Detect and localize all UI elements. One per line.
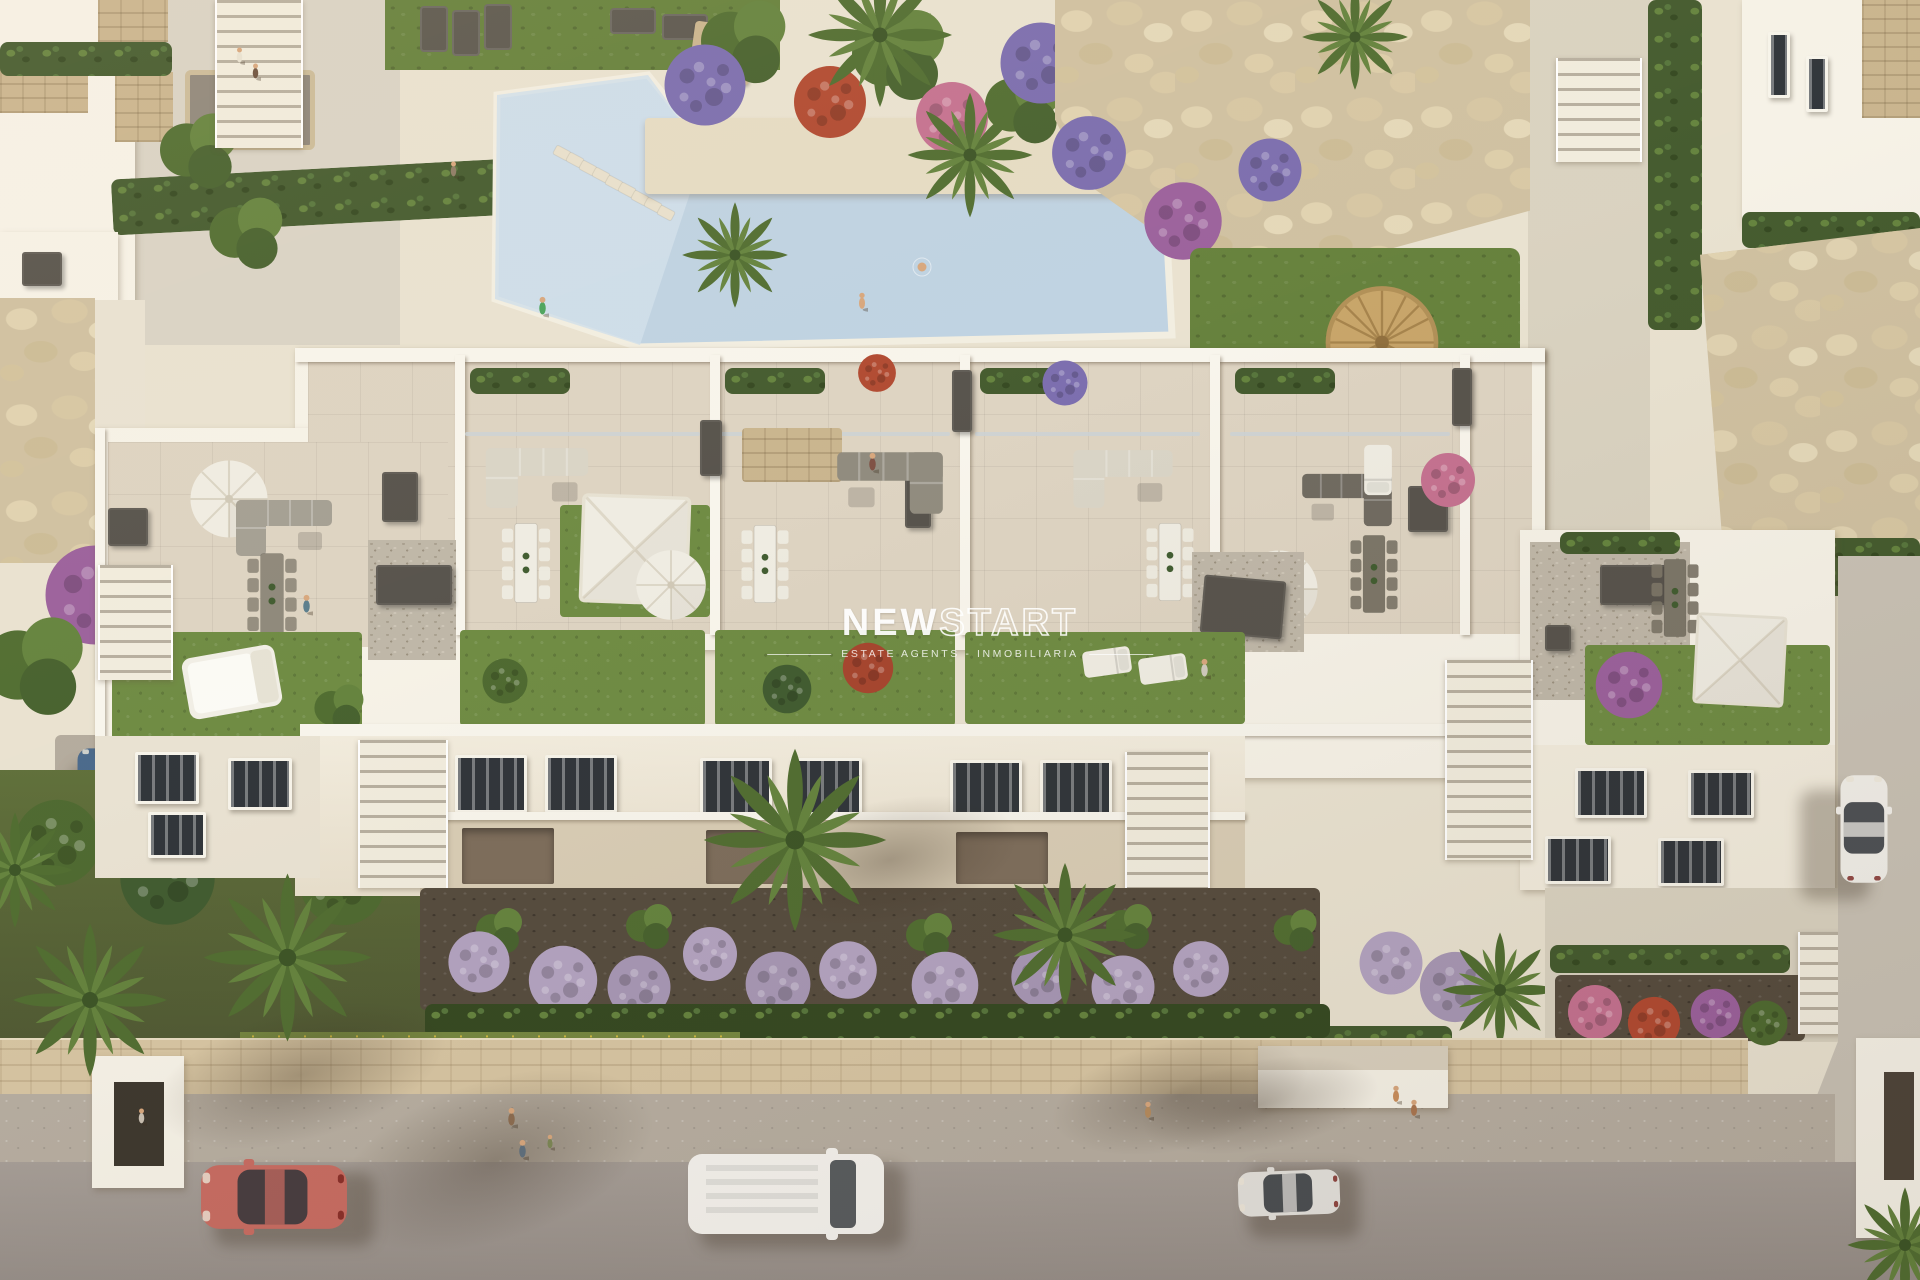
garden-tree	[0, 600, 100, 730]
glass-balustrade	[1230, 432, 1450, 436]
balcony-opening	[462, 828, 554, 884]
pedestrian	[1390, 1082, 1402, 1108]
staircase	[1445, 660, 1533, 860]
bougainvillea-bush	[1592, 648, 1666, 722]
palm-tree	[1440, 930, 1560, 1050]
pedestrian	[234, 44, 245, 68]
outdoor-sofa	[818, 450, 962, 516]
front-parapet	[300, 724, 1545, 736]
roof-skylight-box	[22, 252, 62, 286]
roof-box	[108, 508, 148, 546]
window	[228, 758, 292, 810]
person	[136, 1106, 147, 1128]
bather	[856, 288, 868, 316]
roof-box	[382, 472, 418, 522]
villa-window	[1768, 32, 1790, 98]
villa-door	[1884, 1072, 1914, 1180]
glass-balustrade	[465, 432, 700, 436]
lavender-bush	[1170, 938, 1232, 1000]
pedestrian	[1142, 1098, 1154, 1124]
palm-tree	[680, 200, 790, 310]
watermark-brand-solid: NEW	[842, 602, 940, 644]
terrace-planter	[725, 368, 825, 394]
roof-shrub	[760, 662, 814, 716]
tagline-text: ESTATE AGENTS - INMOBILIARIA	[841, 648, 1079, 660]
garden-plant	[1268, 902, 1324, 958]
sun-lounger	[420, 6, 448, 52]
purple-flower-bush	[1048, 112, 1130, 194]
dining-set	[736, 522, 794, 606]
watermark-brand-outline: START	[939, 602, 1078, 644]
roof-shrub	[480, 656, 530, 706]
glass-balustrade	[975, 432, 1200, 436]
sun-lounger	[1363, 444, 1393, 496]
roof-box	[952, 370, 972, 432]
dining-set	[1142, 520, 1198, 604]
sun-lounger	[452, 10, 480, 56]
tagline-rule-right	[1089, 654, 1153, 655]
pedestrian	[505, 1104, 518, 1132]
person	[1198, 655, 1211, 683]
purple-flower-bush	[660, 40, 750, 130]
garden-plant	[620, 896, 680, 956]
villa-window	[1806, 56, 1828, 112]
outdoor-sofa	[1058, 448, 1188, 510]
palm-tree	[1300, 0, 1410, 92]
outdoor-sofa	[215, 498, 353, 558]
cypress-hedge	[1648, 0, 1702, 330]
palm-tree	[10, 920, 170, 1080]
terrace-planter	[470, 368, 570, 394]
white-parked-car	[1835, 773, 1893, 885]
palm-tree	[990, 860, 1140, 1010]
sun-lounger	[610, 8, 656, 34]
terrace-planter	[1235, 368, 1335, 394]
rock-wall	[1700, 228, 1920, 563]
watermark-brand: NEWSTART	[767, 604, 1153, 642]
shade-sail	[1678, 609, 1803, 711]
pedestrian	[250, 60, 261, 84]
parapet-wall	[710, 355, 720, 635]
purple-flower-planter	[1040, 358, 1090, 408]
white-parasol	[634, 548, 708, 622]
aerial-render-scene: NEWSTART ESTATE AGENTS - INMOBILIARIA	[0, 0, 1920, 1280]
palm-tree	[905, 90, 1035, 220]
pedestrian	[516, 1136, 529, 1164]
hedge-strip	[1550, 945, 1790, 973]
dining-set	[1344, 532, 1404, 616]
window	[1688, 770, 1754, 818]
stone-pillar	[1862, 0, 1920, 118]
window	[455, 755, 527, 813]
lavender-bush	[816, 938, 880, 1002]
dining-set	[498, 520, 554, 606]
pink-flower-planter	[1418, 450, 1478, 510]
pedestrian	[448, 158, 459, 182]
window	[1658, 838, 1724, 886]
garden-tree	[200, 185, 295, 280]
sun-lounger	[484, 4, 512, 50]
person	[300, 592, 313, 618]
roof-box	[376, 565, 452, 605]
bather	[536, 292, 549, 322]
purple-flower-bush	[1235, 135, 1305, 205]
roof-box	[1200, 575, 1287, 640]
red-car	[198, 1158, 350, 1236]
hedge-strip	[0, 42, 172, 76]
staircase	[98, 565, 173, 680]
palm-tree	[1845, 1185, 1920, 1280]
swimmer	[918, 263, 927, 272]
window	[1040, 760, 1112, 818]
window	[148, 812, 206, 858]
watermark-tagline: ESTATE AGENTS - INMOBILIARIA	[767, 648, 1153, 660]
roof-box	[1452, 368, 1472, 426]
pedestrian	[1408, 1096, 1420, 1122]
window	[135, 752, 199, 804]
staircase	[358, 740, 448, 888]
palm-tree	[200, 870, 375, 1045]
silver-car	[1235, 1154, 1344, 1232]
purple-flower-bush	[1688, 986, 1743, 1041]
red-flower-planter	[856, 352, 898, 394]
roof-box	[1545, 625, 1571, 651]
pink-flower-bush	[1565, 982, 1625, 1042]
palm-tree	[0, 810, 75, 930]
tagline-rule-left	[767, 654, 831, 655]
window	[1545, 836, 1611, 884]
watermark: NEWSTART ESTATE AGENTS - INMOBILIARIA	[767, 604, 1153, 660]
window	[1575, 768, 1647, 818]
window	[545, 755, 617, 813]
terrace-planter	[1560, 532, 1680, 554]
dining-set	[242, 550, 302, 638]
roof-box	[700, 420, 722, 476]
rock-wall	[0, 298, 95, 563]
stone-wall-trim	[98, 0, 168, 42]
person	[866, 450, 879, 476]
palm-tree	[700, 745, 890, 935]
white-van	[686, 1148, 886, 1240]
pedestrian-child	[545, 1132, 555, 1153]
lavender-bush	[445, 928, 513, 996]
parapet-wall	[295, 348, 1545, 362]
garden-stairs	[1556, 58, 1642, 162]
